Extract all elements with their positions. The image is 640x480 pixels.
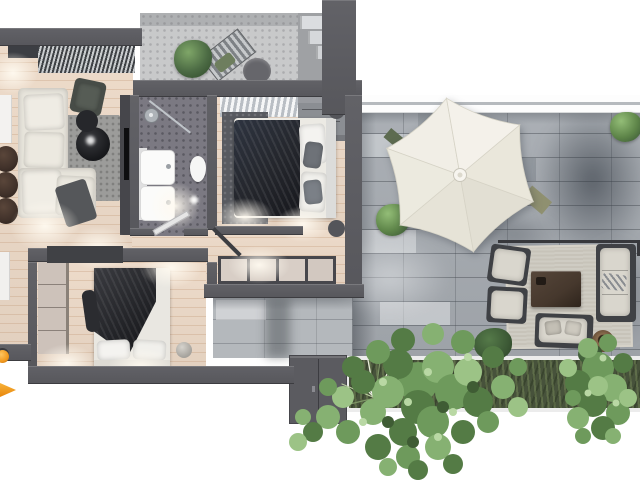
wall-bathroom-bottom [184, 228, 208, 236]
wall-bedroom1-left-lower [207, 262, 217, 286]
wall-bedroom2-bottom [28, 366, 294, 384]
wardrobe-seam [38, 307, 66, 308]
wall-apartment-right [345, 95, 362, 298]
sofa-seam [602, 294, 628, 295]
orange-marker-triangle [0, 383, 16, 397]
sideboard-door [250, 259, 276, 281]
wall-bedroom1-left [207, 95, 217, 230]
bed2-pillow [132, 339, 166, 361]
table-tray [536, 277, 546, 285]
orange-lamp [0, 350, 9, 363]
wall-sideboard-bottom [204, 284, 364, 298]
wardrobe-seam [38, 330, 66, 331]
lounge-cushion [213, 52, 236, 74]
tree-large [268, 312, 568, 480]
wall-bathroom-bottom [130, 228, 154, 236]
sofa-cushion [23, 93, 65, 131]
stone-tile [216, 300, 266, 320]
floor-ball [176, 342, 192, 358]
faucet [166, 164, 171, 169]
sideboard-door [308, 259, 333, 281]
shower-head [144, 108, 159, 123]
faucet [166, 200, 171, 205]
sofa-cushion [23, 131, 64, 168]
sofa-patterned-pillow [601, 272, 627, 291]
tv-screen [124, 128, 129, 180]
bed1-dark-duvet [234, 120, 300, 216]
sofa-seam [602, 270, 628, 271]
tree-small [548, 328, 640, 446]
bed1-headboard [326, 118, 336, 218]
bedroom2-shelf [47, 246, 123, 263]
wardrobe [38, 262, 69, 354]
bed2-pillow [96, 339, 130, 361]
bed1-accent-pillow [303, 179, 323, 205]
bathroom-light-dot [190, 196, 198, 204]
sideboard [218, 256, 336, 284]
kitchen-cabinet-left [0, 252, 10, 300]
wall-bedroom1-bottom [215, 226, 303, 235]
boxwood-bush [610, 112, 640, 142]
outdoor-coffee-table [531, 271, 581, 307]
window-blinds [38, 46, 135, 73]
hexagonal-parasol [372, 95, 542, 260]
wall-bathroom-left [130, 95, 139, 236]
floor-plan-render [0, 0, 640, 480]
wall-shelf [0, 95, 12, 143]
table-highlight [86, 136, 95, 145]
armchair-cushion [74, 82, 103, 112]
coffee-table-small [76, 110, 98, 132]
wall-living-top [0, 28, 142, 46]
wardrobe-seam [38, 284, 66, 285]
outdoor-sofa [596, 244, 636, 322]
bed1-accent-pillow [302, 141, 323, 169]
sideboard-door [221, 259, 247, 281]
nightstand-round [328, 220, 345, 237]
sideboard-door [279, 259, 305, 281]
shower-head-center [149, 113, 153, 117]
